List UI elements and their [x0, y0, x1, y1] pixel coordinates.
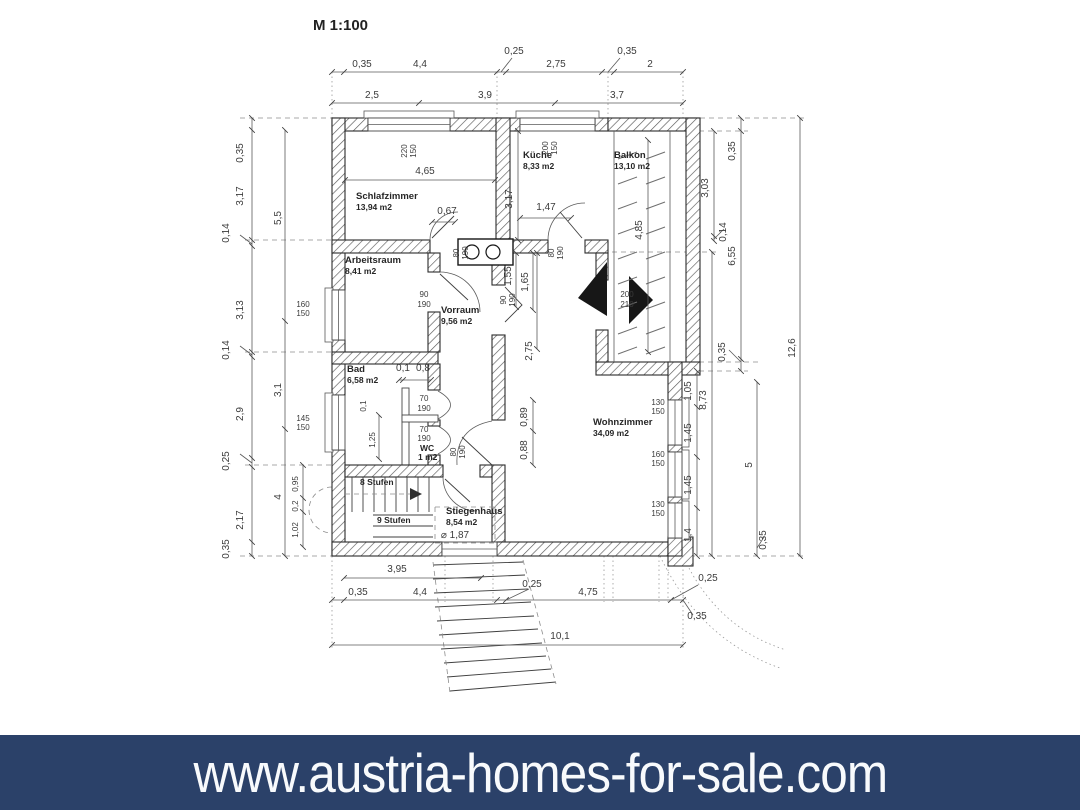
- svg-text:190: 190: [417, 300, 431, 309]
- room-area-balkon: 13,10 m2: [614, 161, 650, 171]
- svg-text:130: 130: [651, 398, 665, 407]
- dim: 0,35: [221, 539, 232, 559]
- dim: 4,65: [415, 166, 435, 177]
- svg-text:145: 145: [296, 414, 310, 423]
- svg-text:150: 150: [296, 423, 310, 432]
- door-note-stiegenhaus: 80 190: [449, 445, 467, 459]
- dim: 0,35: [687, 611, 707, 622]
- room-name-balkon: Balkon: [614, 150, 646, 161]
- window-note-wohnzimmer-1: 130 150: [651, 398, 665, 416]
- dim: 0,8: [416, 363, 430, 374]
- stair-lower-label: 9 Stufen: [377, 515, 411, 525]
- dim: 2,75: [546, 59, 566, 70]
- dim: 0,25: [221, 451, 232, 471]
- dim: 1,05: [683, 381, 694, 401]
- dim: 0,35: [727, 141, 738, 161]
- dim: 6,55: [727, 246, 738, 266]
- floorplan-drawing: M 1:100: [0, 0, 1080, 735]
- dim: 0,35: [617, 46, 637, 57]
- room-area-vorraum: 9,56 m2: [441, 316, 472, 326]
- svg-text:160: 160: [651, 450, 665, 459]
- dim: 8,73: [698, 390, 709, 410]
- svg-text:150: 150: [651, 509, 665, 518]
- website-banner: www.austria-homes-for-sale.com: [0, 735, 1080, 810]
- svg-text:150: 150: [409, 144, 418, 158]
- room-area-stiegenhaus: 8,54 m2: [446, 517, 477, 527]
- dim: 2,17: [235, 510, 246, 530]
- dim: 0,25: [698, 573, 718, 584]
- dim: 2,5: [365, 90, 379, 101]
- svg-text:90: 90: [420, 290, 429, 299]
- svg-text:190: 190: [508, 293, 517, 307]
- room-area-bad: 6,58 m2: [347, 375, 378, 385]
- dim: 12,6: [787, 338, 798, 358]
- svg-text:150: 150: [651, 407, 665, 416]
- dim: 2,9: [235, 407, 246, 421]
- dim: 3,9: [478, 90, 492, 101]
- dim: 4,85: [634, 220, 645, 240]
- room-name-arbeitsraum: Arbeitsraum: [345, 255, 401, 266]
- website-url: www.austria-homes-for-sale.com: [193, 741, 887, 805]
- dim: 3,03: [700, 178, 711, 198]
- room-name-bad: Bad: [347, 364, 365, 375]
- room-name-stiegenhaus: Stiegenhaus: [446, 506, 503, 517]
- dim: 0,14: [718, 222, 729, 242]
- door-note-balkon: 200 210: [620, 290, 634, 309]
- dim: 0,14: [221, 340, 232, 360]
- dim: 0,35: [758, 530, 769, 550]
- svg-text:70: 70: [420, 425, 429, 434]
- dim: 5,5: [273, 211, 284, 225]
- dim: 10,1: [550, 631, 570, 642]
- dim: 5: [744, 462, 755, 468]
- door-note-kueche: 80 190: [547, 246, 565, 260]
- dim: 4: [273, 494, 284, 500]
- dim: 0,35: [235, 143, 246, 163]
- door-note-wohnzimmer: 90 190: [499, 293, 517, 307]
- svg-text:130: 130: [651, 500, 665, 509]
- room-area-kueche: 8,33 m2: [523, 161, 554, 171]
- dim: 3,7: [610, 90, 624, 101]
- dim: 1,55: [503, 266, 514, 286]
- dim: 0,2: [291, 500, 300, 512]
- dim: 1,45: [683, 423, 694, 443]
- svg-text:90: 90: [499, 295, 508, 304]
- dim: 0,35: [348, 587, 368, 598]
- svg-text:190: 190: [417, 434, 431, 443]
- dim: 1,47: [536, 202, 556, 213]
- room-area-wohnzimmer: 34,09 m2: [593, 428, 629, 438]
- svg-text:210: 210: [620, 300, 634, 309]
- room-name-kueche: Küche: [523, 150, 552, 161]
- room-name-vorraum: Vorraum: [441, 305, 479, 316]
- svg-text:70: 70: [420, 394, 429, 403]
- dim: 3,17: [235, 186, 246, 206]
- svg-text:190: 190: [556, 246, 565, 260]
- dim: 0,35: [717, 342, 728, 362]
- walls: [332, 118, 700, 566]
- window-note-schlafzimmer: 220 150: [400, 144, 418, 158]
- dim: 0,25: [522, 579, 542, 590]
- dim: 0,67: [437, 206, 457, 217]
- floorplan-page: M 1:100: [0, 0, 1080, 810]
- window-note-bad: 145 150: [296, 414, 310, 432]
- room-area-arbeitsraum: 8,41 m2: [345, 266, 376, 276]
- dim: 4,75: [578, 587, 598, 598]
- dim: 3,95: [387, 564, 407, 575]
- svg-text:160: 160: [296, 300, 310, 309]
- window-note-wohnzimmer-3: 130 150: [651, 500, 665, 518]
- stair-upper-label: 8 Stufen: [360, 477, 394, 487]
- svg-text:190: 190: [458, 445, 467, 459]
- dim: 2,75: [524, 341, 535, 361]
- door-note-bad: 70 190: [417, 394, 431, 413]
- svg-text:80: 80: [452, 248, 461, 257]
- dim: 3,13: [235, 300, 246, 320]
- door-note-schlafzimmer: 80 190: [452, 246, 470, 260]
- dim: 1,45: [683, 475, 694, 495]
- dim: 0,25: [504, 46, 524, 57]
- dim: 1,4: [683, 528, 694, 542]
- door-note-arbeitsraum: 90 190: [417, 290, 431, 309]
- svg-text:220: 220: [400, 144, 409, 158]
- svg-text:150: 150: [651, 459, 665, 468]
- opening-notes: 220 150 200 150 200 210 90 190 90 190 80…: [296, 141, 665, 518]
- svg-text:200: 200: [620, 290, 634, 299]
- dim: 1,65: [520, 272, 531, 292]
- dim: 0,89: [519, 407, 530, 427]
- svg-text:150: 150: [296, 309, 310, 318]
- window-note-wohnzimmer-2: 160 150: [651, 450, 665, 468]
- dim: 2: [647, 59, 653, 70]
- svg-text:190: 190: [461, 246, 470, 260]
- dim: 1,02: [291, 522, 300, 538]
- scale-label: M 1:100: [313, 17, 368, 34]
- dim: 0,35: [352, 59, 372, 70]
- door-note-wc: 70 190: [417, 425, 431, 443]
- room-area-wc: 1 m2: [418, 452, 438, 462]
- dim: 1,25: [368, 432, 377, 448]
- dim: 0,88: [519, 440, 530, 460]
- svg-text:190: 190: [417, 404, 431, 413]
- dim: 0,95: [291, 476, 300, 492]
- stair-diameter-label: ⌀ 1,87: [441, 530, 470, 541]
- dim: 3,17: [504, 189, 515, 209]
- dim: 0,14: [221, 223, 232, 243]
- svg-text:80: 80: [449, 447, 458, 456]
- room-area-schlafzimmer: 13,94 m2: [356, 202, 392, 212]
- dim: 4,4: [413, 587, 427, 598]
- dim: 0,1: [396, 363, 410, 374]
- room-name-wohnzimmer: Wohnzimmer: [593, 417, 653, 428]
- dim: 4,4: [413, 59, 427, 70]
- dim: 0,1: [359, 400, 368, 412]
- window-note-arbeitsraum: 160 150: [296, 300, 310, 318]
- svg-text:80: 80: [547, 248, 556, 257]
- room-name-schlafzimmer: Schlafzimmer: [356, 191, 418, 202]
- dim: 3,1: [273, 383, 284, 397]
